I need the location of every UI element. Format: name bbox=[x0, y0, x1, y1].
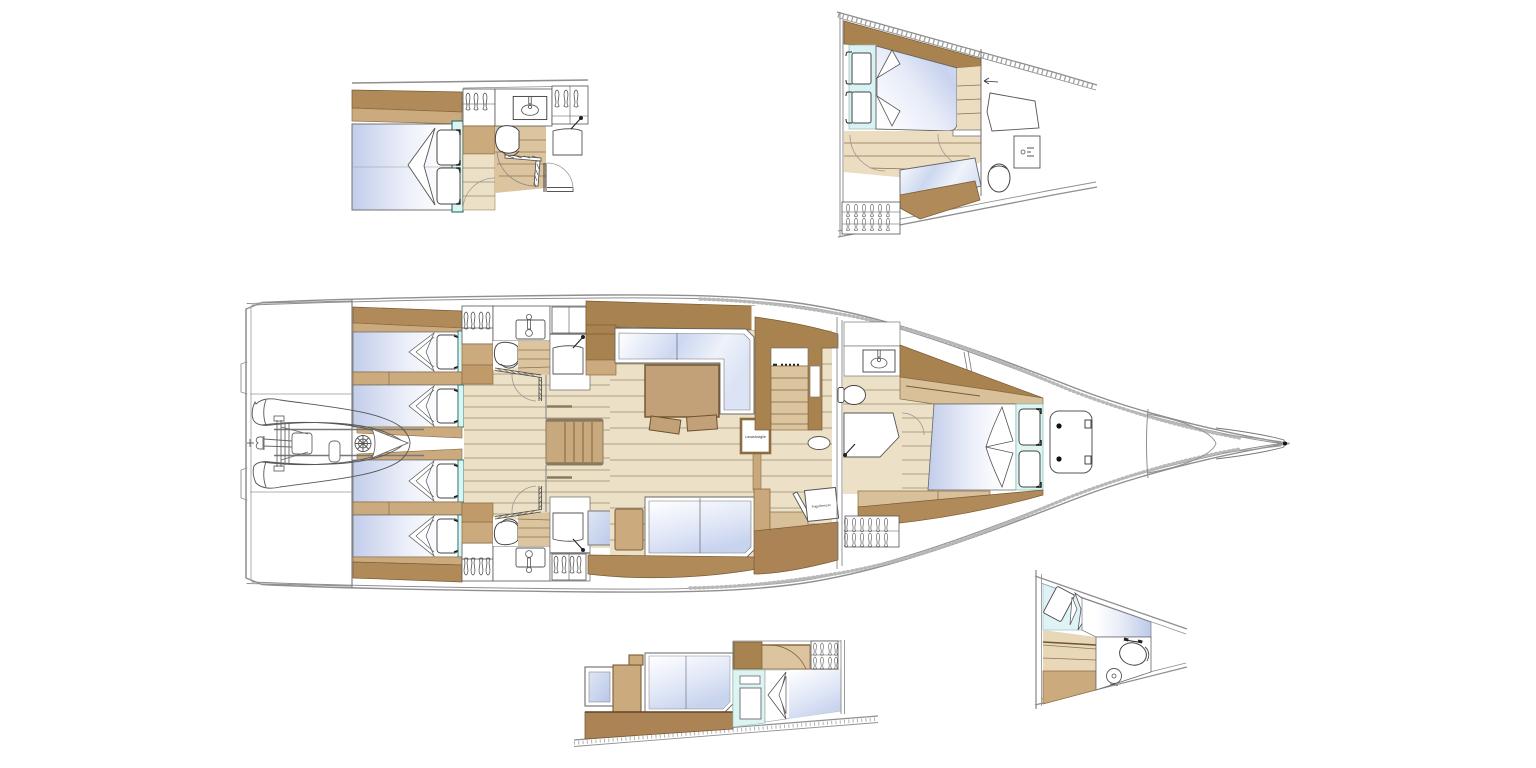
svg-text:Lavastoviglie: Lavastoviglie bbox=[745, 435, 766, 439]
